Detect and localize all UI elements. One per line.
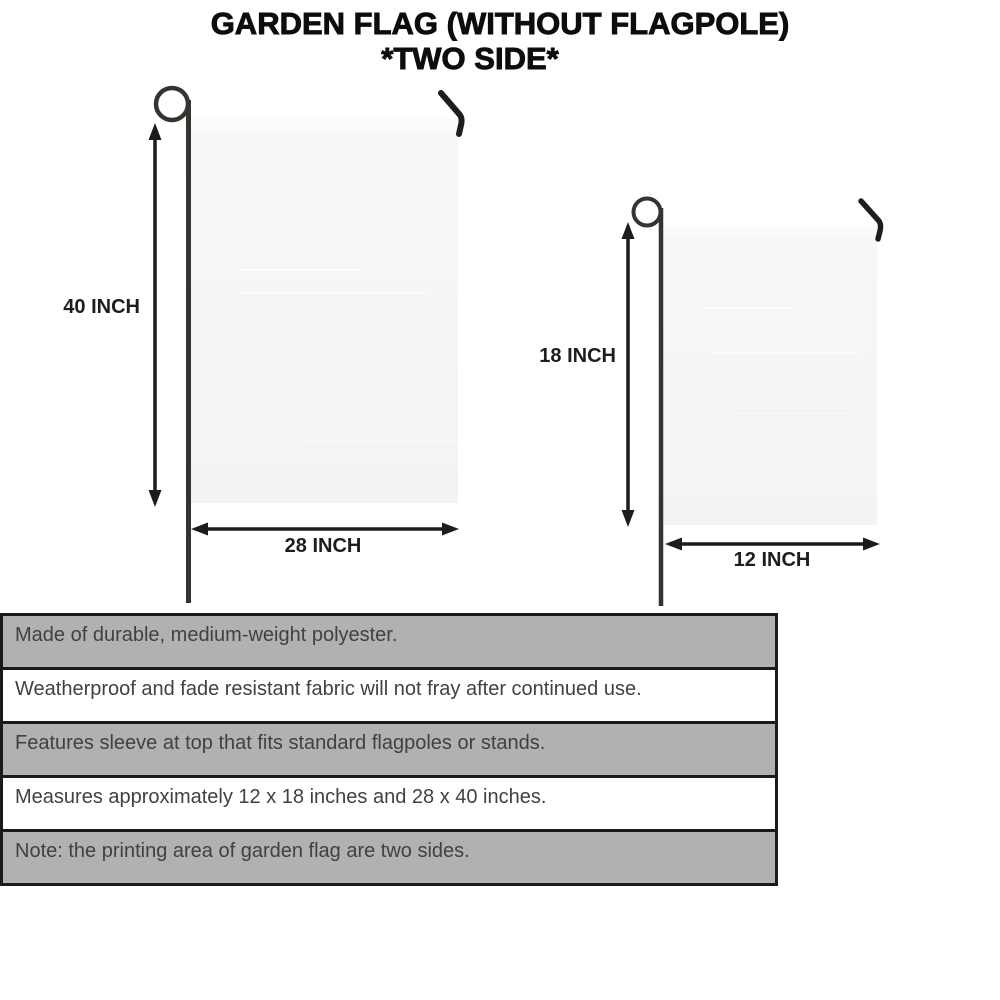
feature-row-note: Note: the printing area of garden flag a…	[0, 829, 778, 886]
large-flag-fabric	[190, 118, 458, 503]
small-height-arrow	[622, 222, 635, 527]
wrinkle-line	[240, 292, 430, 294]
wrinkle-line	[300, 440, 458, 442]
wrinkle-line	[730, 412, 850, 414]
large-pole-loop-icon	[156, 88, 188, 120]
feature-row-measurements: Measures approximately 12 x 18 inches an…	[0, 775, 778, 832]
feature-row-material: Made of durable, medium-weight polyester…	[0, 613, 778, 670]
small-flag-fabric	[663, 225, 877, 525]
feature-text: Made of durable, medium-weight polyester…	[15, 624, 397, 646]
feature-text: Note: the printing area of garden flag a…	[15, 840, 470, 862]
large-flag-group	[149, 88, 462, 603]
small-flag-height-label: 18 INCH	[476, 345, 616, 367]
small-flag-group	[622, 199, 881, 607]
large-flag-width-label: 28 INCH	[223, 535, 423, 557]
feature-text: Features sleeve at top that fits standar…	[15, 732, 545, 754]
feature-row-weatherproof: Weatherproof and fade resistant fabric w…	[0, 667, 778, 724]
feature-text: Measures approximately 12 x 18 inches an…	[15, 786, 546, 808]
small-pole-loop-icon	[634, 199, 661, 226]
wrinkle-line	[235, 269, 360, 271]
flag-size-diagram	[0, 0, 1000, 611]
wrinkle-line	[710, 352, 860, 354]
feature-list: Made of durable, medium-weight polyester…	[0, 613, 778, 886]
large-height-arrow	[149, 123, 162, 507]
feature-text: Weatherproof and fade resistant fabric w…	[15, 678, 642, 700]
large-width-arrow	[191, 523, 459, 536]
sleeve-highlight	[663, 225, 877, 235]
garden-flag-infographic: GARDEN FLAG (WITHOUT FLAGPOLE) *TWO SIDE…	[0, 0, 1000, 1000]
large-flag-height-label: 40 INCH	[0, 296, 140, 318]
feature-row-sleeve: Features sleeve at top that fits standar…	[0, 721, 778, 778]
wrinkle-line	[700, 307, 795, 309]
small-flag-width-label: 12 INCH	[672, 549, 872, 571]
sleeve-highlight	[190, 118, 458, 130]
